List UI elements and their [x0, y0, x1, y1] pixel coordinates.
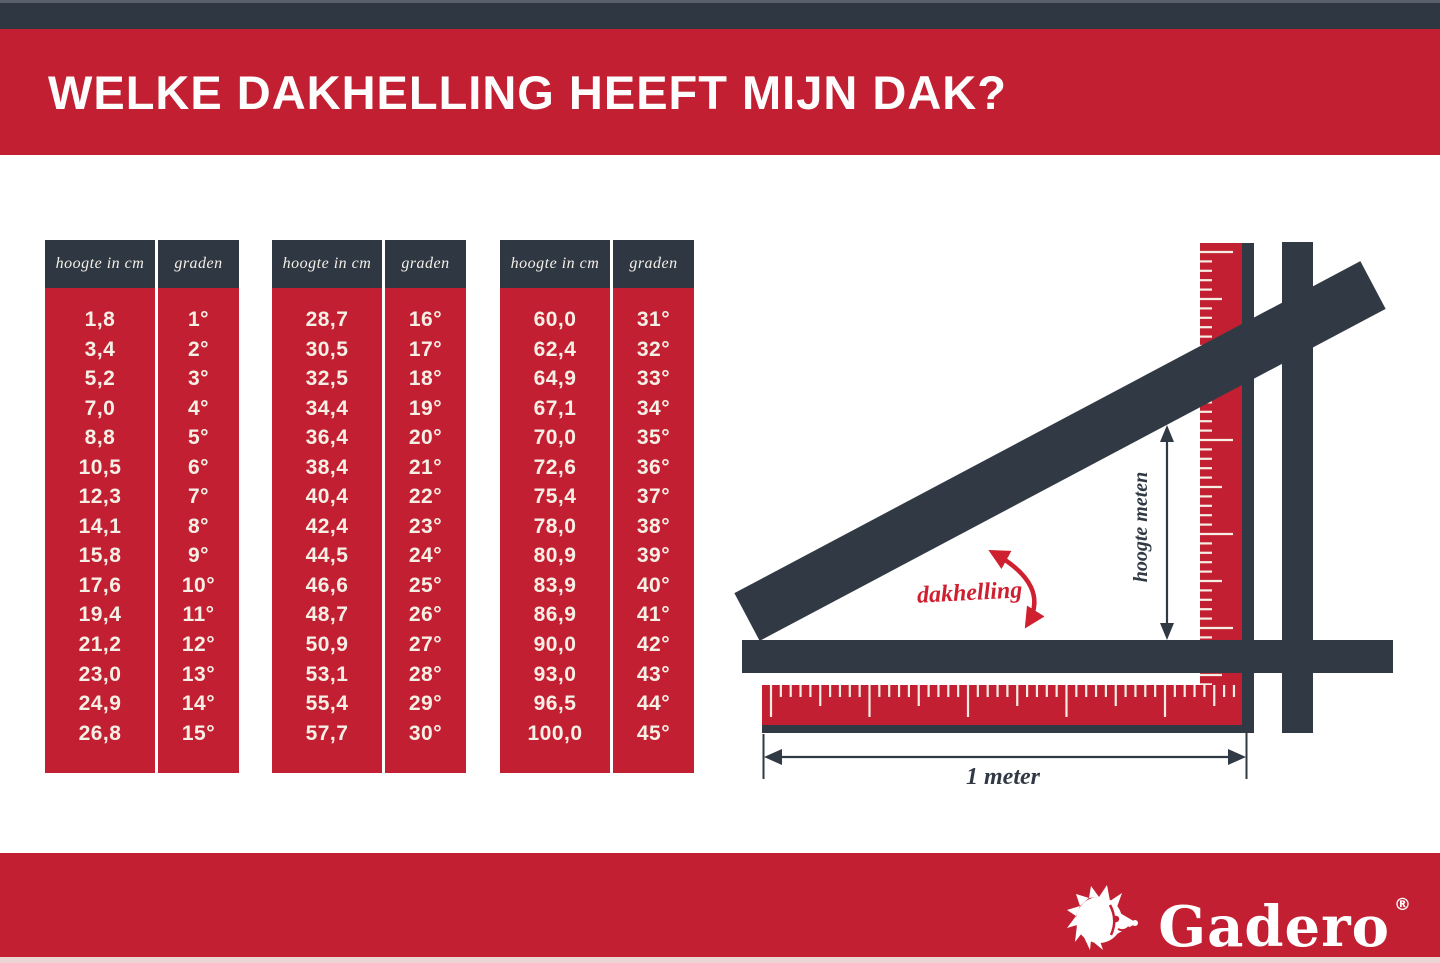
height-value: 28,7: [272, 305, 382, 335]
height-value: 83,9: [500, 571, 610, 601]
height-value: 14,1: [45, 512, 155, 542]
degrees-value: 23°: [385, 512, 466, 542]
degrees-value: 13°: [158, 660, 239, 690]
height-value: 38,4: [272, 453, 382, 483]
height-value: 90,0: [500, 630, 610, 660]
registered-mark: ®: [1394, 895, 1412, 915]
height-values: 60,062,464,967,170,072,675,478,080,983,9…: [500, 288, 610, 773]
degrees-value: 8°: [158, 512, 239, 542]
height-value: 8,8: [45, 423, 155, 453]
degrees-value: 31°: [613, 305, 694, 335]
height-value: 30,5: [272, 335, 382, 365]
degrees-value: 16°: [385, 305, 466, 335]
height-value: 55,4: [272, 689, 382, 719]
degrees-value: 25°: [385, 571, 466, 601]
height-value: 72,6: [500, 453, 610, 483]
degrees-values: 1°2°3°4°5°6°7°8°9°10°11°12°13°14°15°: [158, 288, 239, 773]
height-value: 93,0: [500, 660, 610, 690]
degrees-value: 1°: [158, 305, 239, 335]
degrees-value: 7°: [158, 482, 239, 512]
height-value: 5,2: [45, 364, 155, 394]
height-column: hoogte in cm 1,83,45,27,08,810,512,314,1…: [45, 240, 155, 773]
height-value: 21,2: [45, 630, 155, 660]
height-value: 23,0: [45, 660, 155, 690]
roof-pitch-diagram: hoogte meten dakhelling 1 meter: [728, 226, 1440, 803]
degrees-value: 32°: [613, 335, 694, 365]
height-value: 96,5: [500, 689, 610, 719]
height-value: 78,0: [500, 512, 610, 542]
degrees-value: 39°: [613, 541, 694, 571]
height-values: 28,730,532,534,436,438,440,442,444,546,6…: [272, 288, 382, 773]
degrees-value: 24°: [385, 541, 466, 571]
column-header-degrees: graden: [158, 240, 239, 288]
column-header-height: hoogte in cm: [45, 240, 155, 288]
height-value: 26,8: [45, 719, 155, 749]
degrees-value: 37°: [613, 482, 694, 512]
degrees-value: 38°: [613, 512, 694, 542]
degrees-value: 20°: [385, 423, 466, 453]
height-value: 44,5: [272, 541, 382, 571]
dim-arrow-left: [764, 749, 782, 765]
height-value: 62,4: [500, 335, 610, 365]
degrees-value: 2°: [158, 335, 239, 365]
degrees-value: 40°: [613, 571, 694, 601]
degrees-value: 21°: [385, 453, 466, 483]
width-label: 1 meter: [966, 764, 1041, 790]
height-arrow-top: [1160, 425, 1174, 442]
degrees-value: 3°: [158, 364, 239, 394]
column-header-degrees: graden: [613, 240, 694, 288]
angle-label: dakhelling: [916, 577, 1023, 608]
height-value: 36,4: [272, 423, 382, 453]
brand-name: Gadero®: [1158, 869, 1412, 963]
height-value: 100,0: [500, 719, 610, 749]
height-value: 67,1: [500, 394, 610, 424]
title-band: WELKE DAKHELLING HEEFT MIJN DAK?: [0, 29, 1440, 155]
height-value: 70,0: [500, 423, 610, 453]
height-value: 15,8: [45, 541, 155, 571]
height-value: 60,0: [500, 305, 610, 335]
degrees-values: 16°17°18°19°20°21°22°23°24°25°26°27°28°2…: [385, 288, 466, 773]
degrees-value: 42°: [613, 630, 694, 660]
degrees-value: 45°: [613, 719, 694, 749]
height-value: 17,6: [45, 571, 155, 601]
height-value: 42,4: [272, 512, 382, 542]
top-bar: [0, 0, 1440, 29]
degrees-value: 19°: [385, 394, 466, 424]
degrees-value: 9°: [158, 541, 239, 571]
height-value: 50,9: [272, 630, 382, 660]
hedgehog-icon: [1064, 880, 1146, 952]
degrees-value: 26°: [385, 600, 466, 630]
degrees-value: 5°: [158, 423, 239, 453]
height-value: 57,7: [272, 719, 382, 749]
conversion-table-1: hoogte in cm 1,83,45,27,08,810,512,314,1…: [45, 240, 239, 773]
height-value: 1,8: [45, 305, 155, 335]
height-value: 53,1: [272, 660, 382, 690]
height-values: 1,83,45,27,08,810,512,314,115,817,619,42…: [45, 288, 155, 773]
degrees-value: 14°: [158, 689, 239, 719]
column-header-height: hoogte in cm: [272, 240, 382, 288]
degrees-value: 6°: [158, 453, 239, 483]
degrees-value: 17°: [385, 335, 466, 365]
degrees-value: 41°: [613, 600, 694, 630]
height-arrow-bottom: [1160, 623, 1174, 640]
height-column: hoogte in cm 28,730,532,534,436,438,440,…: [272, 240, 382, 773]
height-value: 7,0: [45, 394, 155, 424]
degrees-value: 35°: [613, 423, 694, 453]
degrees-value: 28°: [385, 660, 466, 690]
height-value: 86,9: [500, 600, 610, 630]
conversion-table-3: hoogte in cm 60,062,464,967,170,072,675,…: [500, 240, 694, 773]
degrees-value: 11°: [158, 600, 239, 630]
degrees-column: graden 1°2°3°4°5°6°7°8°9°10°11°12°13°14°…: [158, 240, 239, 773]
height-value: 75,4: [500, 482, 610, 512]
degrees-value: 34°: [613, 394, 694, 424]
height-value: 12,3: [45, 482, 155, 512]
degrees-values: 31°32°33°34°35°36°37°38°39°40°41°42°43°4…: [613, 288, 694, 773]
degrees-value: 15°: [158, 719, 239, 749]
horizontal-ruler-edge: [762, 725, 1254, 733]
height-value: 34,4: [272, 394, 382, 424]
degrees-value: 29°: [385, 689, 466, 719]
brand-logo: Gadero®: [1064, 869, 1412, 963]
degrees-column: graden 16°17°18°19°20°21°22°23°24°25°26°…: [385, 240, 466, 773]
column-header-height: hoogte in cm: [500, 240, 610, 288]
degrees-value: 18°: [385, 364, 466, 394]
infographic-page: WELKE DAKHELLING HEEFT MIJN DAK? hoogte …: [0, 0, 1440, 963]
height-value: 64,9: [500, 364, 610, 394]
height-value: 40,4: [272, 482, 382, 512]
degrees-value: 27°: [385, 630, 466, 660]
height-value: 46,6: [272, 571, 382, 601]
degrees-value: 12°: [158, 630, 239, 660]
height-value: 10,5: [45, 453, 155, 483]
height-value: 19,4: [45, 600, 155, 630]
degrees-value: 30°: [385, 719, 466, 749]
rafter-beam: [747, 285, 1373, 617]
degrees-value: 44°: [613, 689, 694, 719]
height-label: hoogte meten: [1130, 472, 1152, 583]
degrees-value: 36°: [613, 453, 694, 483]
degrees-value: 33°: [613, 364, 694, 394]
height-value: 32,5: [272, 364, 382, 394]
height-value: 24,9: [45, 689, 155, 719]
height-column: hoogte in cm 60,062,464,967,170,072,675,…: [500, 240, 610, 773]
page-title: WELKE DAKHELLING HEEFT MIJN DAK?: [48, 65, 1007, 120]
degrees-value: 4°: [158, 394, 239, 424]
bottom-beam: [742, 640, 1393, 673]
dim-arrow-right: [1228, 749, 1246, 765]
degrees-column: graden 31°32°33°34°35°36°37°38°39°40°41°…: [613, 240, 694, 773]
horizontal-ruler: [762, 685, 1242, 725]
conversion-table-2: hoogte in cm 28,730,532,534,436,438,440,…: [272, 240, 466, 773]
height-value: 3,4: [45, 335, 155, 365]
height-value: 80,9: [500, 541, 610, 571]
column-header-degrees: graden: [385, 240, 466, 288]
degrees-value: 22°: [385, 482, 466, 512]
degrees-value: 43°: [613, 660, 694, 690]
degrees-value: 10°: [158, 571, 239, 601]
height-value: 48,7: [272, 600, 382, 630]
